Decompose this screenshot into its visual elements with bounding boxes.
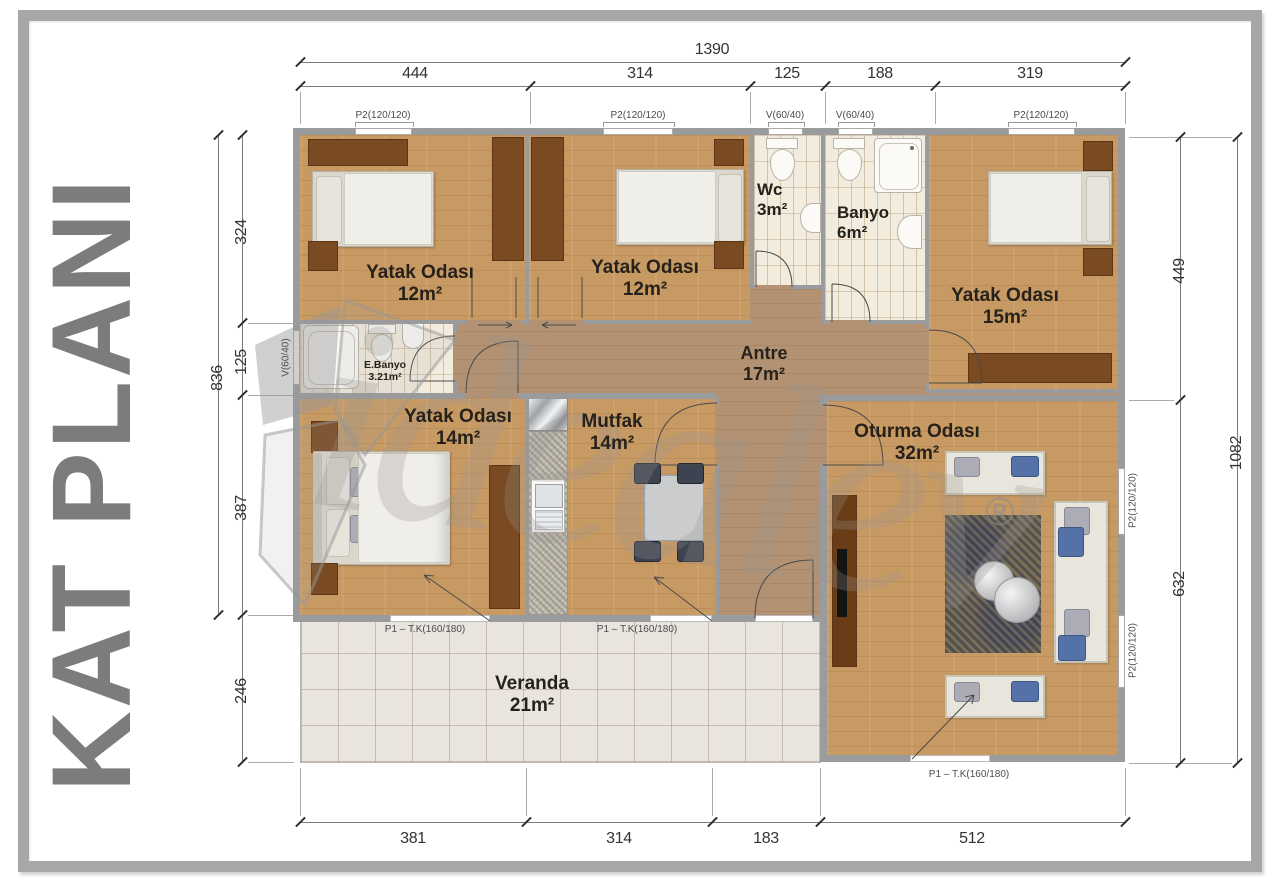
room-area: 3.21m² <box>335 371 435 383</box>
dimension-value: 449 <box>1171 211 1189 331</box>
extension-line <box>1125 768 1126 816</box>
dimension-line <box>300 86 1125 87</box>
dimension-value: 125 <box>233 302 251 422</box>
window-label: P2(120/120) <box>1128 461 1139 541</box>
extension-line <box>248 615 294 616</box>
room-area: 17m² <box>694 364 834 385</box>
extension-line <box>530 92 531 124</box>
dimension-value: 512 <box>912 830 1032 848</box>
room-name: Oturma Odası <box>847 421 987 443</box>
extension-line <box>526 768 527 816</box>
window-label: P2(120/120) <box>593 110 683 121</box>
floor-plan: Yatak Odası 12m² Yatak Odası 12m² Wc 3m²… <box>300 135 1125 762</box>
dimension-value: 1082 <box>1228 393 1246 513</box>
extension-line <box>712 768 713 816</box>
extension-line <box>300 92 301 124</box>
room-area: 12m² <box>350 284 490 306</box>
door-label: P1 – T.K(160/180) <box>899 769 1039 780</box>
window-label: P2(120/120) <box>996 110 1086 121</box>
dimension-value: 387 <box>233 448 251 568</box>
room-name: Yatak Odası <box>935 285 1075 307</box>
room-name: Mutfak <box>542 411 682 433</box>
extension-line <box>248 762 294 763</box>
dimension-value: 324 <box>233 172 251 292</box>
room-area: 15m² <box>935 307 1075 329</box>
room-name: Yatak Odası <box>575 257 715 279</box>
room-name: Banyo <box>837 203 917 223</box>
room-area: 6m² <box>837 223 917 243</box>
room-name: E.Banyo <box>335 359 435 371</box>
room-area: 14m² <box>542 433 682 455</box>
door-label: P1 – T.K(160/180) <box>567 624 707 635</box>
room-label-antre: Antre 17m² <box>694 343 834 385</box>
extension-line <box>248 395 294 396</box>
window-label: P2(120/120) <box>338 110 428 121</box>
extension-line <box>935 92 936 124</box>
window-label: V(60/40) <box>281 323 292 393</box>
room-name: Yatak Odası <box>388 406 528 428</box>
window-label: V(60/40) <box>810 110 900 121</box>
room-label-ebanyo: E.Banyo 3.21m² <box>335 359 435 384</box>
extension-line <box>300 768 301 816</box>
dimension-value: 188 <box>820 65 940 83</box>
room-label-bedroom3: Yatak Odası 15m² <box>935 285 1075 330</box>
dimension-value: 319 <box>970 65 1090 83</box>
extension-line <box>820 768 821 816</box>
room-name: Wc <box>757 180 817 200</box>
dimension-value: 314 <box>580 65 700 83</box>
room-name: Veranda <box>462 673 602 695</box>
extension-line <box>1125 92 1126 124</box>
room-label-veranda: Veranda 21m² <box>462 673 602 718</box>
room-label-mutfak: Mutfak 14m² <box>542 411 682 456</box>
room-area: 3m² <box>757 200 817 220</box>
door-label: P1 – T.K(160/180) <box>355 624 495 635</box>
dimension-value: 246 <box>233 631 251 751</box>
room-name: Antre <box>694 343 834 364</box>
dimension-value: 314 <box>559 830 679 848</box>
room-area: 21m² <box>462 695 602 717</box>
dimension-value: 836 <box>209 318 227 438</box>
floor-plan-page: { "title": "KAT PLANI", "watermark": { "… <box>0 0 1280 886</box>
room-label-bedroom2: Yatak Odası 12m² <box>575 257 715 302</box>
room-label-banyo: Banyo 6m² <box>837 203 917 243</box>
room-area: 32m² <box>847 443 987 465</box>
room-name: Yatak Odası <box>350 262 490 284</box>
dimension-value: 381 <box>353 830 473 848</box>
extension-line <box>1129 400 1174 401</box>
room-label-bedroom4: Yatak Odası 14m² <box>388 406 528 451</box>
dimension-value: 632 <box>1171 524 1189 644</box>
room-label-wc: Wc 3m² <box>757 180 817 220</box>
room-label-oturma: Oturma Odası 32m² <box>847 421 987 466</box>
room-area: 12m² <box>575 279 715 301</box>
dimension-value: 444 <box>355 65 475 83</box>
page-title: KAT PLANI <box>36 176 148 792</box>
dimension-value: 1390 <box>652 41 772 59</box>
dimension-value: 183 <box>706 830 826 848</box>
room-area: 14m² <box>388 428 528 450</box>
room-label-bedroom1: Yatak Odası 12m² <box>350 262 490 307</box>
window-label: P2(120/120) <box>1128 611 1139 691</box>
dimension-line <box>300 62 1125 63</box>
